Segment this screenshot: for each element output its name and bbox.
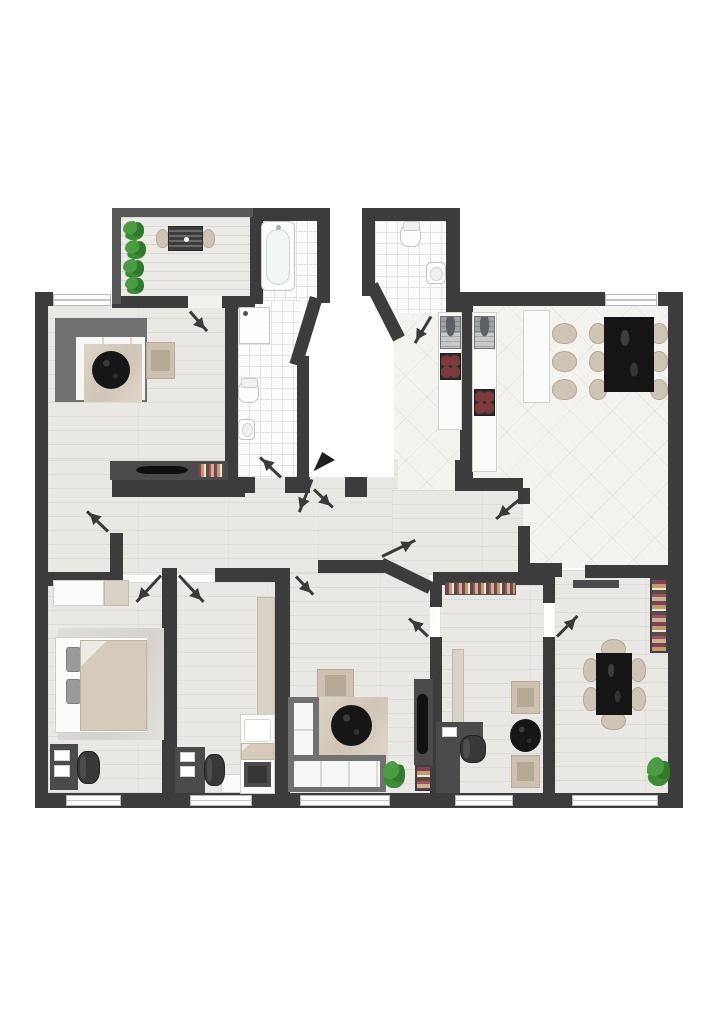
dining-office-top-wall <box>585 565 683 578</box>
window-living-bottom <box>300 795 390 806</box>
window-dining-office <box>572 795 658 806</box>
bathroom-sink <box>238 419 255 440</box>
tv <box>417 694 428 754</box>
desk-paper <box>54 765 70 777</box>
wc-toilet <box>400 224 421 247</box>
kitchen-stove-right <box>474 389 495 416</box>
balcony-plant <box>125 277 144 294</box>
bedroom-dresser-side <box>104 580 129 606</box>
armchair-cushion <box>151 350 170 371</box>
toilet <box>238 381 259 403</box>
wc-sink <box>426 262 446 284</box>
meeting-chair <box>630 687 646 711</box>
desk-paper <box>180 752 195 762</box>
bed-foot-blanket-fold <box>248 766 267 783</box>
bed-blanket <box>80 640 147 731</box>
armchair-cushion <box>517 688 534 707</box>
living-top-bottom-wall <box>112 480 245 497</box>
corner-sofa-cushions-bottom <box>294 761 380 787</box>
coffee-table <box>92 351 130 389</box>
balcony-border-left <box>112 208 121 304</box>
hallway-floor-east <box>392 490 523 575</box>
exterior-wall-right <box>668 292 683 808</box>
office-plant <box>647 757 670 786</box>
meeting-chair <box>630 658 646 682</box>
living-top-wall <box>112 296 188 308</box>
window-study <box>190 795 252 806</box>
wc-left-wall <box>362 208 375 296</box>
dining-top-wall <box>448 292 605 306</box>
coffee-table-bottom <box>331 705 372 746</box>
lounge-cabinet <box>452 649 464 725</box>
window-living-top <box>53 294 111 306</box>
armchair-cushion <box>325 675 346 696</box>
office-desk-return <box>436 746 460 793</box>
bed-pillow <box>66 647 81 672</box>
kitchen-sink-left <box>440 316 461 349</box>
desk-paper <box>442 727 457 737</box>
desk-paper <box>54 750 70 761</box>
island-stool <box>552 323 577 344</box>
living-lounge-wall-upper <box>430 583 442 607</box>
window-office-lounge <box>455 795 513 806</box>
kitchen-bottom-wall <box>455 478 523 491</box>
window-dining-top <box>605 294 657 306</box>
kitchen-island <box>523 310 550 403</box>
desk-paper <box>180 766 195 777</box>
bedroom-dresser <box>53 580 104 606</box>
dining-top-wall-right <box>658 292 683 306</box>
desk-chair <box>204 754 225 786</box>
exterior-wall-top-corner <box>35 292 53 306</box>
lounge-table <box>510 719 541 752</box>
desk-chair <box>77 751 100 784</box>
office-chair <box>460 735 486 763</box>
wc-right-wall <box>446 208 460 313</box>
island-stool <box>552 351 577 372</box>
exterior-wall-left <box>35 292 48 808</box>
balcony-plant <box>125 240 146 259</box>
bathroom-living-wall <box>225 296 238 482</box>
wall-shelf <box>573 580 619 588</box>
soundbar <box>136 466 188 474</box>
entrance-stub-wall <box>345 477 367 497</box>
island-stool <box>552 379 577 400</box>
floor-plan <box>0 0 724 1024</box>
single-bed-pillow <box>244 719 271 742</box>
window-bedroom <box>66 795 121 806</box>
living-bottom-top-wall <box>318 560 384 573</box>
bed-pillow <box>66 679 81 704</box>
bookshelf <box>650 578 668 653</box>
balcony-border-top <box>112 208 253 217</box>
sideboard-books <box>197 463 225 478</box>
balcony-chair <box>202 229 215 248</box>
bathroom-right-wall-upper <box>317 208 330 303</box>
balcony-plant <box>123 259 144 278</box>
lounge-office-wall-upper <box>543 575 555 603</box>
bathtub <box>261 221 295 291</box>
balcony-door-opening <box>188 296 222 308</box>
armchair-cushion <box>517 762 534 781</box>
dining-table <box>604 317 654 392</box>
study-wardrobe <box>257 597 275 716</box>
lounge-wall-shelf <box>445 582 516 595</box>
balcony-plant <box>123 221 144 240</box>
study-top-wall <box>215 568 275 582</box>
single-bed-blanket <box>241 743 274 760</box>
bathroom-right-wall-lower <box>297 356 309 478</box>
hallway-annex-stub <box>110 533 123 574</box>
balcony-table <box>168 226 203 251</box>
meeting-table <box>596 653 632 715</box>
lounge-office-wall-lower <box>543 637 555 795</box>
tv-unit-books <box>415 765 432 791</box>
living-plant <box>383 761 405 788</box>
shower <box>239 307 270 344</box>
kitchen-stove-left <box>440 353 461 380</box>
kitchen-sink-right <box>474 316 495 349</box>
